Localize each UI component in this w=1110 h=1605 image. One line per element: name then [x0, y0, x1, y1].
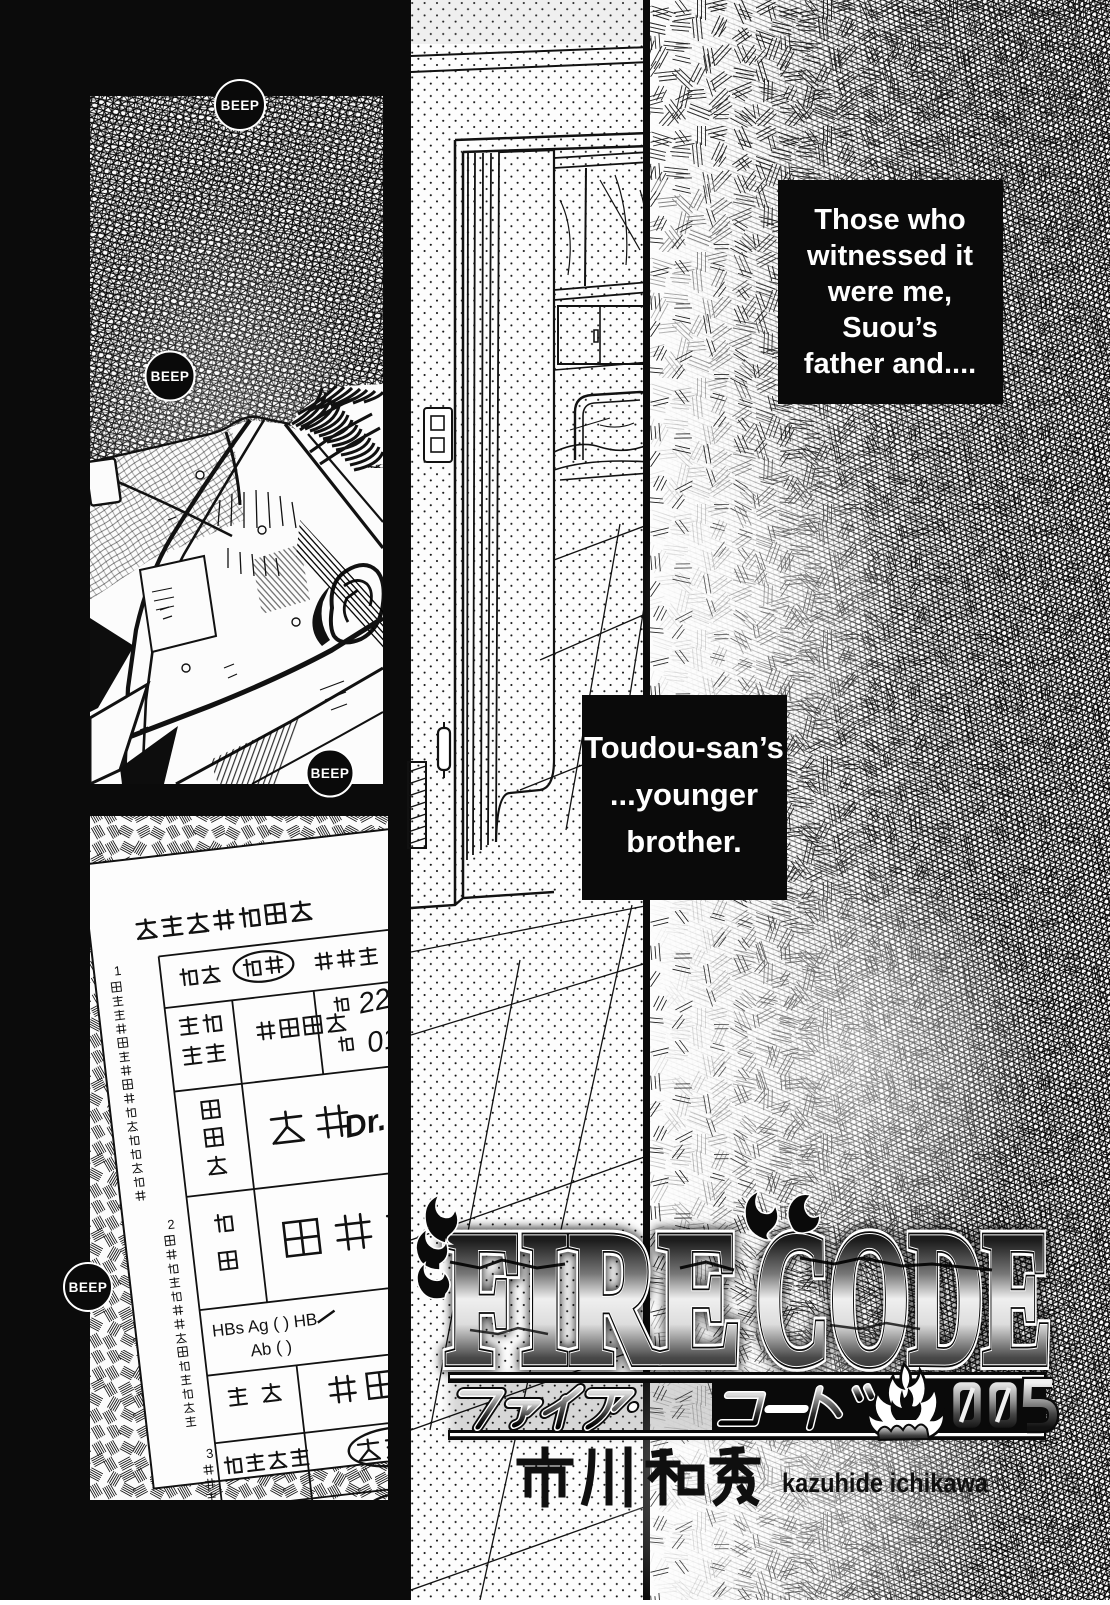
svg-text:Suou’s: Suou’s [842, 312, 938, 344]
svg-text:Toudou-san’s: Toudou-san’s [584, 730, 784, 765]
svg-text:witnessed it: witnessed it [806, 240, 973, 272]
svg-text:BEEP: BEEP [221, 98, 260, 113]
svg-text:BEEP: BEEP [311, 766, 350, 781]
svg-text:father and....: father and.... [804, 348, 976, 380]
svg-text:...younger: ...younger [610, 777, 758, 812]
svg-text:BEEP: BEEP [69, 1280, 108, 1295]
svg-text:BEEP: BEEP [151, 369, 190, 384]
svg-text:kazuhide ichikawa: kazuhide ichikawa [782, 1468, 989, 1498]
svg-text:brother.: brother. [626, 824, 741, 859]
svg-text:were me,: were me, [827, 276, 952, 308]
svg-text:22: 22 [355, 983, 394, 1021]
svg-text:Those who: Those who [814, 204, 965, 236]
